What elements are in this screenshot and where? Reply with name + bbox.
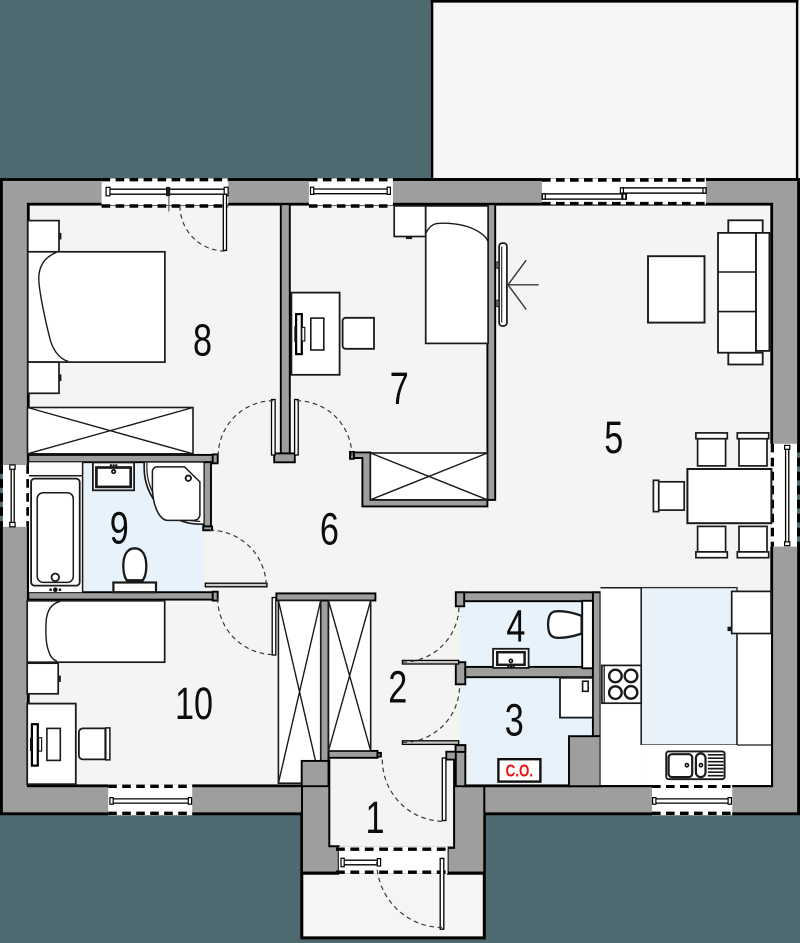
- svg-text:10: 10: [175, 680, 213, 730]
- svg-text:3: 3: [505, 696, 524, 746]
- svg-text:8: 8: [193, 316, 212, 366]
- svg-text:4: 4: [506, 602, 525, 652]
- svg-text:2: 2: [388, 663, 407, 713]
- svg-text:1: 1: [365, 793, 384, 843]
- svg-text:5: 5: [604, 414, 623, 464]
- svg-text:9: 9: [110, 504, 129, 554]
- svg-text:7: 7: [390, 365, 409, 415]
- svg-text:6: 6: [320, 505, 339, 555]
- svg-text:C.O.: C.O.: [506, 761, 534, 781]
